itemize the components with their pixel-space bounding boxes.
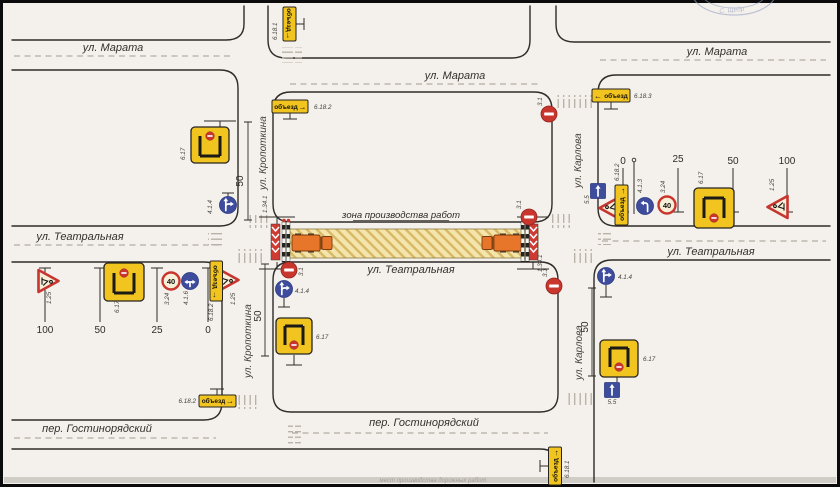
detour-panel: объезд → [272,100,308,113]
crosswalk [567,391,595,406]
arrow-icon: → [211,291,220,299]
street-label-marata-west: ул. Марата [82,42,144,54]
arrow-icon: → [551,449,560,457]
crosswalk [556,95,592,108]
speed-limit-value: 40 [167,277,175,286]
dimension-value: 50 [235,175,246,187]
detour-panel-text: объезд [604,92,628,100]
sign-code-chevron-left: 1.34.1 [262,195,269,213]
sign-code: 3.1 [298,267,305,276]
arrow-icon: → [299,102,307,111]
striped-post [521,222,525,262]
detour-panel: объезд → [210,261,223,301]
street-label-gostinoryadsky-center: пер. Гостинорядский [369,417,479,429]
detour-panel-text: объезд [618,197,626,221]
drawing-caption-fragment: мест производства дорожных работ [380,478,487,484]
distance-value: 50 [727,156,739,167]
sign-code: 3.1 [537,97,544,106]
sign-code: 6.18.1 [272,22,279,40]
crosswalk [288,424,301,446]
distance-value: 50 [94,325,106,336]
sign-code: 6.18.2 [314,104,332,111]
crosswalk [282,47,302,63]
work-truck-right [482,234,522,253]
closed-section-bar [121,272,126,274]
truck-cab [482,237,492,250]
detour-panel-text: объезд [212,265,220,289]
distance-value: 0 [620,156,626,167]
no-entry-bar [544,113,554,116]
arrow-icon: → [285,32,294,40]
sign-code: 6.17 [316,334,329,341]
signal-lamp-icon [287,219,291,223]
sign-code: 6.18.2 [178,398,196,405]
detour-panel: объезд → [615,185,628,225]
traffic-scheme-page: С. Щедр ул. Марата ул. [0,0,840,487]
no-entry-bar [524,216,534,219]
striped-post [287,222,291,262]
crosswalk [208,231,222,246]
arrow-icon: ← [594,91,602,100]
sign-code: 4.1.4 [207,199,214,214]
truck-body [292,235,320,251]
work-truck-left [292,234,332,253]
sign-code: 5.5 [608,399,617,406]
sign-code: 1.25 [230,292,237,305]
street-label-gostinoryadsky-west: пер. Гостинорядский [42,423,152,435]
crosswalk [570,249,594,263]
closed-section-bar [711,217,716,219]
sign-code: 1.25 [769,178,776,191]
closed-section-bar [616,366,621,368]
sign-code: 6.18.3 [634,93,652,100]
sign-code: 3.24 [164,292,171,305]
street-label-marata-center: ул. Марата [424,70,486,82]
mandatory-direction-icon [598,268,615,285]
detour-panel-text: объезд [274,103,298,111]
closed-section-bar [207,135,212,137]
sign-code: 6.18.2 [614,163,621,181]
crosswalk [548,214,572,228]
sign-code: 5.5 [584,195,591,204]
truck-body [494,235,522,251]
closed-section-bar [291,344,296,346]
striped-post [282,222,286,262]
signal-lamp-icon [282,219,286,223]
arrow-icon: → [226,397,234,406]
truck-cab [322,237,332,250]
sign-code: 6.17 [114,300,121,313]
street-label-teatralnaya-east: ул. Театральная [666,246,754,258]
sign-code: 6.17 [643,356,656,363]
distance-value: 25 [151,325,163,336]
dimension-value: 50 [253,310,264,322]
distance-value: 100 [779,156,796,167]
street-label-marata-east: ул. Марата [686,46,748,58]
sign-code: 1.25 [46,291,53,304]
mandatory-direction-icon [220,197,237,214]
mandatory-direction-icon [276,281,293,298]
distance-value: 100 [37,325,54,336]
detour-panel: ← объезд [592,89,630,102]
sign-code: 4.1.4 [295,288,310,295]
detour-panel-text: объезд [551,458,559,482]
detour-panel: объезд → [549,447,562,485]
street-label-karlova-north: ул. Карлова [573,133,584,189]
no-entry-bar [549,285,559,288]
sign-code: 6.17 [698,171,705,184]
sign-code: 6.18.1 [564,460,571,478]
crosswalk [237,395,259,409]
no-entry-bar [284,269,294,272]
sign-code: 3.24 [660,180,667,193]
detour-panel: объезд → [199,395,236,407]
crosswalk [598,230,611,245]
work-zone-label: зона производства работ [341,210,460,221]
detour-panel: объезд → [283,7,296,41]
mandatory-direction-icon [637,198,654,215]
dimension-value: 50 [580,321,591,333]
sign-code: 4.1.3 [637,178,644,193]
crosswalk [238,249,262,263]
distance-value: 0 [205,325,211,336]
sign-code: 6.17 [180,147,187,160]
detour-panel-text: объезд [285,8,293,32]
sign-code: 3.1 [542,268,549,277]
striped-post [526,222,530,262]
detour-panel-text: объезд [202,397,226,405]
sign-code: 6.18.2 [208,303,215,321]
arrow-icon: → [617,187,626,195]
distance-value: 25 [672,154,684,165]
speed-limit-value: 40 [663,201,671,210]
scheme-canvas: С. Щедр ул. Марата ул. [0,0,840,487]
street-label-teatralnaya-center: ул. Театральная [366,264,454,276]
street-label-teatralnaya-west: ул. Театральная [35,231,123,243]
sign-code: 3.1 [516,200,523,209]
sign-code: 4.1.6 [183,290,190,305]
sign-code: 4.1.4 [618,274,633,281]
street-label-kropotkina-north: ул. Кропоткина [258,116,269,191]
